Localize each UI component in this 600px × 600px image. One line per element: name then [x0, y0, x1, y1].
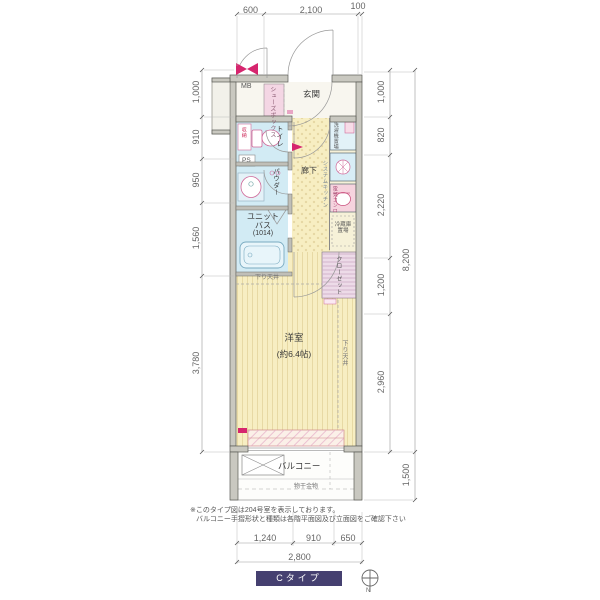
dim-left-910: 910	[191, 117, 201, 157]
dim-top-100: 100	[346, 1, 370, 11]
dim-top-600: 600	[237, 5, 264, 15]
unit-bath-label: ユニット バス (1014)	[240, 212, 286, 238]
entrance-label: 玄関	[303, 90, 320, 100]
powder-basin-icon	[241, 177, 261, 198]
powder-label: パウダー	[271, 168, 278, 196]
dim-right-8200: 8,200	[401, 240, 411, 280]
room-size-label: (約6.4帖)	[258, 350, 330, 360]
type-banner: Cタイプ	[256, 571, 342, 586]
ps-label: PS	[242, 157, 251, 164]
dim-right-2960: 2,960	[376, 362, 386, 402]
dim-bottom-910: 910	[293, 533, 334, 543]
toilet-storage-label: 収納	[240, 127, 246, 138]
dim-right-2220: 2,220	[376, 185, 386, 225]
mb-label: MB	[241, 83, 252, 91]
room-name-label: 洋室	[266, 334, 322, 345]
dim-bottom-650: 650	[334, 533, 362, 543]
hallway-label: 廊下	[301, 166, 317, 175]
note-line-2: バルコニー手摺形状と種類は各階平面図及び立面図をご確認下さい	[196, 514, 406, 524]
system-kitchen-label: システムキッチン	[321, 160, 327, 208]
compass-north-label: N	[366, 588, 370, 595]
dim-right-820: 820	[376, 115, 386, 155]
shoe-box-label: シューズボックス	[268, 86, 275, 138]
dim-top-2100: 2,100	[264, 5, 358, 15]
fridge-label: 冷蔵庫 置場	[333, 222, 353, 235]
dim-right-1000: 1,000	[376, 72, 386, 112]
dim-right-1500: 1,500	[401, 455, 411, 495]
dim-bottom-1240: 1,240	[237, 533, 293, 543]
floor-plan-page: MB 玄関 シューズボックス トイレ 収納 PS パウダー ユニット バス (1…	[0, 0, 600, 600]
dim-bottom-2800: 2,800	[237, 552, 362, 562]
drying-fixture-label: 物干金物	[294, 484, 318, 491]
entrance-door-arc	[288, 30, 333, 75]
lowered-ceiling-label-2: 下り天井	[340, 340, 347, 366]
lowered-ceiling-label-1: 下り天井	[255, 275, 279, 282]
dim-left-950: 950	[191, 160, 201, 200]
dim-right-1200: 1,200	[376, 265, 386, 305]
toilet-tank-icon	[252, 130, 262, 147]
dim-left-1560: 1,560	[191, 218, 201, 258]
balcony-label: バルコニー	[278, 462, 320, 472]
closet-label: クローゼット	[334, 256, 341, 295]
washer-label: 洗濯機置場	[332, 122, 338, 150]
dim-left-1000: 1,000	[191, 72, 201, 112]
firedoor-bowtie-icon	[236, 63, 247, 75]
stove-burner-icon	[336, 193, 351, 206]
mb-door-arc	[237, 48, 267, 78]
dim-left-3780: 3,780	[191, 343, 201, 383]
stove-label: 電気コンロ	[331, 186, 337, 214]
toilet-label: トイレ	[275, 125, 283, 148]
